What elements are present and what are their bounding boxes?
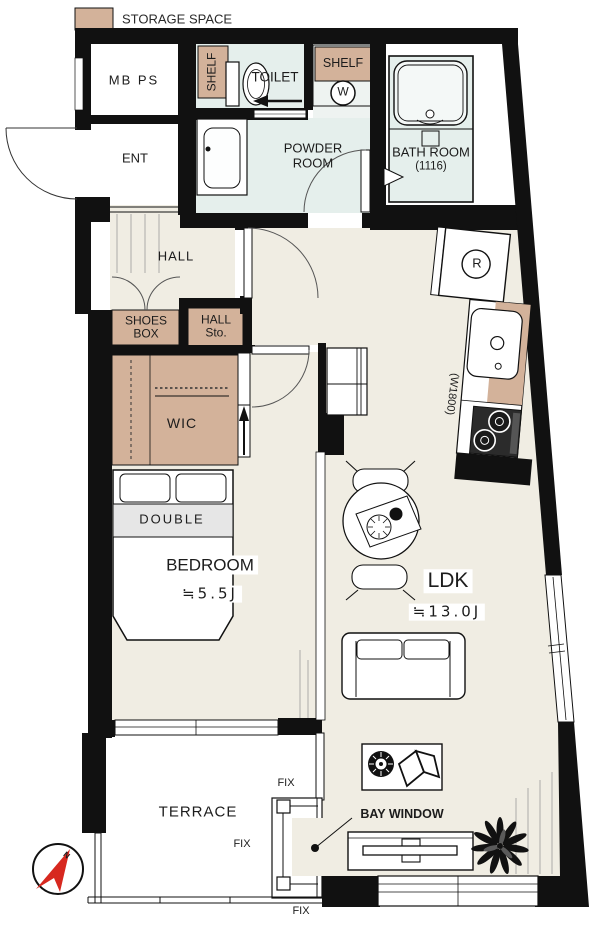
bowl [368,751,394,777]
sofa [342,633,465,699]
bedroom-area-label: ≒5.5J [178,586,242,603]
mbps-vent [75,58,83,110]
room-label-ldk: LDK [424,569,473,593]
floor-plan: STORAGE SPACE MB PS ENT SHELF TOILET SHE… [0,0,600,927]
room-label-terrace: TERRACE [159,805,238,822]
room-label-hall: HALL [158,250,195,265]
vanity-sink [197,119,247,195]
fridge-mark: R [472,257,481,272]
bay-window-label: BAY WINDOW [360,807,443,821]
washer-mark: W [337,85,348,98]
room-label-bedroom: BEDROOM [162,555,258,574]
bath-unit [384,56,473,202]
legend-label: STORAGE SPACE [122,12,232,27]
room-label-bath: BATH ROOM (1116) [392,145,470,172]
refrigerator [431,227,511,302]
toilet-shelf-label: SHELF [205,53,218,92]
entrance-door [6,128,77,199]
ldk-area-label: ≒13.0J [409,604,485,621]
bay-window [378,876,538,906]
room-label-toilet: TOILET [251,69,298,84]
coffee-table [362,744,442,790]
pillow [176,474,226,502]
bathtub [394,61,467,125]
toilet-sliding-door [254,110,306,118]
tv-board [348,832,473,870]
terrace-ldk-window [316,733,324,800]
fix-label-bottom: FIX [292,905,309,917]
compass-icon [33,844,83,894]
fix-label-top: FIX [277,777,294,789]
bed-type-label: DOUBLE [139,513,204,528]
tv [363,846,457,855]
room-label-ent: ENT [122,152,148,167]
chair [352,565,407,589]
room-label-mbps: MB PS [109,74,159,89]
stove [470,406,522,457]
hall-storage-label: HALL Sto. [201,314,231,341]
floor-plan-graphics [0,0,600,927]
room-label-powder: POWDER ROOM [284,141,343,170]
laundry-shelf-label: SHELF [323,56,363,70]
bedroom-ldk-partition [316,452,325,720]
bedroom-terrace-window [115,720,278,735]
legend-swatch [75,8,113,30]
pillow [120,474,170,502]
shoes-box-label: SHOES BOX [125,315,167,342]
fix-label-side: FIX [233,838,250,850]
cabinet [327,348,367,415]
room-label-wic: WIC [167,416,197,432]
